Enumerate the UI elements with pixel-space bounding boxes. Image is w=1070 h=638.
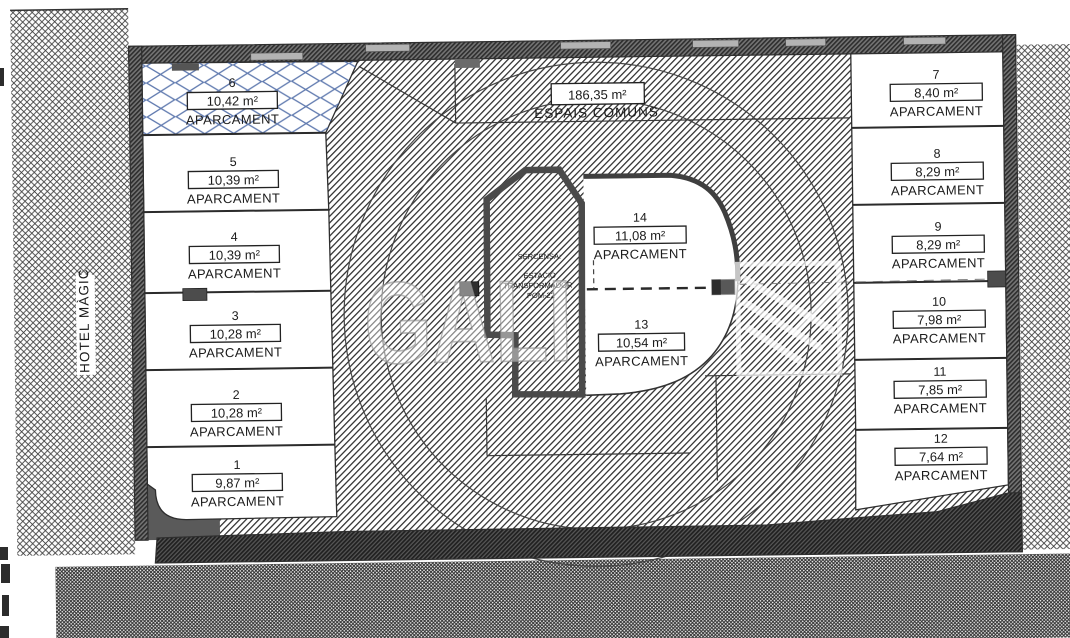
- svg-text:7,64 m²: 7,64 m²: [919, 449, 964, 465]
- svg-text:11: 11: [933, 365, 946, 379]
- svg-text:186,35 m²: 186,35 m²: [568, 87, 627, 103]
- svg-text:11,08 m²: 11,08 m²: [615, 228, 666, 244]
- svg-text:8,29 m²: 8,29 m²: [916, 237, 961, 253]
- svg-text:10,42 m²: 10,42 m²: [207, 93, 259, 109]
- svg-text:APARCAMENT: APARCAMENT: [595, 353, 689, 369]
- svg-text:APARCAMENT: APARCAMENT: [895, 467, 989, 483]
- svg-text:2: 2: [233, 388, 240, 402]
- svg-text:APARCAMENT: APARCAMENT: [190, 423, 284, 439]
- svg-text:8: 8: [934, 147, 941, 161]
- svg-text:HOTEL MÀGIC: HOTEL MÀGIC: [76, 268, 92, 373]
- svg-text:10,28 m²: 10,28 m²: [211, 405, 263, 421]
- svg-text:APARCAMENT: APARCAMENT: [187, 190, 281, 206]
- svg-text:12: 12: [934, 432, 948, 446]
- svg-text:14: 14: [633, 211, 647, 225]
- svg-text:9,87 m²: 9,87 m²: [215, 475, 260, 491]
- svg-text:9: 9: [934, 220, 941, 234]
- svg-text:7: 7: [932, 68, 939, 82]
- svg-text:10,54 m²: 10,54 m²: [616, 335, 668, 351]
- svg-text:APARCAMENT: APARCAMENT: [191, 493, 285, 509]
- svg-text:APARCAMENT: APARCAMENT: [894, 400, 988, 416]
- svg-text:APARCAMENT: APARCAMENT: [891, 182, 985, 198]
- svg-text:8,29 m²: 8,29 m²: [915, 164, 960, 180]
- svg-text:APARCAMENT: APARCAMENT: [890, 103, 984, 119]
- svg-text:APARCAMENT: APARCAMENT: [186, 111, 280, 127]
- svg-text:5: 5: [230, 155, 237, 169]
- svg-text:10,39 m²: 10,39 m²: [209, 247, 261, 263]
- svg-text:10: 10: [932, 295, 946, 309]
- svg-text:4: 4: [231, 230, 238, 244]
- svg-text:6: 6: [229, 76, 236, 90]
- svg-text:1: 1: [234, 458, 241, 472]
- svg-text:APARCAMENT: APARCAMENT: [892, 255, 986, 271]
- svg-text:7,85 m²: 7,85 m²: [918, 382, 963, 398]
- svg-text:APARCAMENT: APARCAMENT: [189, 344, 283, 360]
- svg-text:3: 3: [232, 309, 239, 323]
- svg-text:APARCAMENT: APARCAMENT: [188, 265, 282, 281]
- svg-text:13: 13: [634, 318, 648, 332]
- svg-text:7,98 m²: 7,98 m²: [917, 312, 962, 328]
- svg-text:10,28 m²: 10,28 m²: [210, 326, 262, 342]
- svg-text:ESPAIS COMUNS: ESPAIS COMUNS: [534, 104, 659, 121]
- svg-text:APARCAMENT: APARCAMENT: [893, 330, 987, 346]
- svg-text:8,40 m²: 8,40 m²: [914, 85, 959, 101]
- svg-text:APARCAMENT: APARCAMENT: [594, 246, 688, 262]
- svg-text:10,39 m²: 10,39 m²: [208, 172, 260, 188]
- svg-text:GALI: GALI: [363, 256, 573, 389]
